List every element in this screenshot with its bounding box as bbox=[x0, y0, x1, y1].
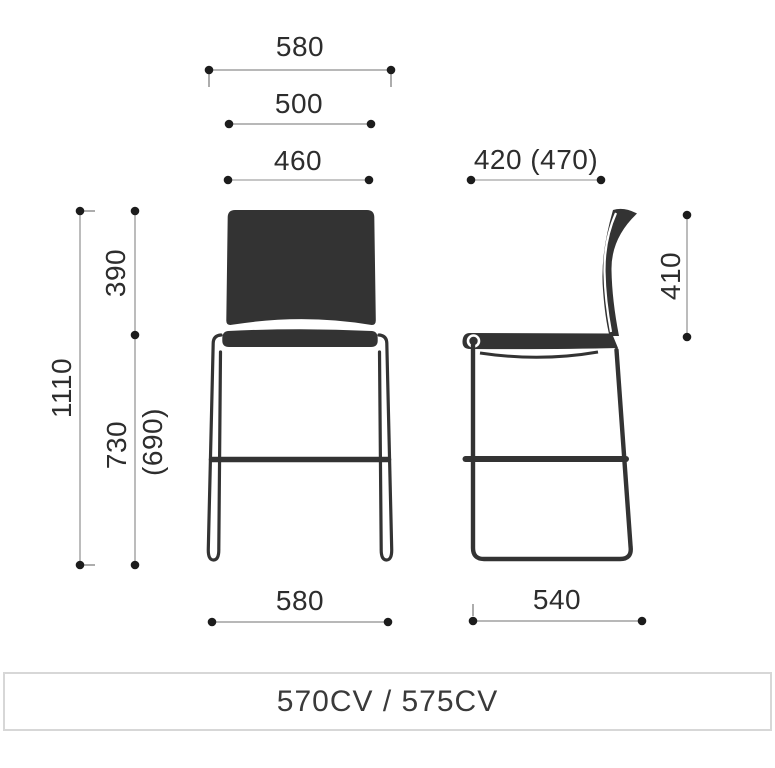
front-view-chair bbox=[208, 210, 391, 560]
dim-label-front-inner-width: 460 bbox=[274, 147, 322, 175]
dim-label-backrest-height: 390 bbox=[102, 249, 130, 297]
dim-line-front-overall-width bbox=[205, 66, 396, 87]
front-left-leg bbox=[208, 335, 221, 560]
product-dimension-sheet: 580 500 460 420 (470) 1110 390 730 (690)… bbox=[0, 0, 775, 768]
dim-line-backrest-and-seat-height bbox=[131, 207, 140, 570]
front-backrest bbox=[226, 210, 376, 325]
side-seat bbox=[462, 333, 618, 349]
dim-line-side-seat-depth bbox=[467, 176, 606, 185]
dim-line-front-seat-width bbox=[225, 120, 376, 129]
dim-line-overall-height bbox=[76, 207, 95, 570]
dim-label-seat-height: 730 bbox=[103, 421, 131, 469]
front-seat bbox=[222, 329, 377, 347]
dim-label-side-backrest-height: 410 bbox=[657, 252, 685, 300]
side-seat-underside bbox=[480, 352, 598, 357]
side-view-chair bbox=[462, 209, 637, 559]
dim-line-front-inner-width bbox=[224, 176, 374, 185]
model-name-bar: 570CV / 575CV bbox=[3, 672, 772, 731]
dim-label-front-base-width: 580 bbox=[276, 587, 324, 615]
model-name-label: 570CV / 575CV bbox=[277, 685, 498, 719]
dim-label-front-seat-width: 500 bbox=[275, 90, 323, 118]
dim-label-front-overall-width: 580 bbox=[276, 33, 324, 61]
dim-label-overall-height: 1110 bbox=[48, 358, 76, 418]
dim-label-side-seat-depth: 420 (470) bbox=[474, 146, 598, 174]
dim-label-side-base-depth: 540 bbox=[533, 586, 581, 614]
technical-drawing bbox=[0, 0, 775, 768]
dim-label-seat-height-alt: (690) bbox=[139, 408, 167, 476]
side-frame bbox=[473, 345, 631, 559]
front-right-leg bbox=[379, 335, 392, 560]
dim-line-front-base-width bbox=[208, 618, 393, 627]
